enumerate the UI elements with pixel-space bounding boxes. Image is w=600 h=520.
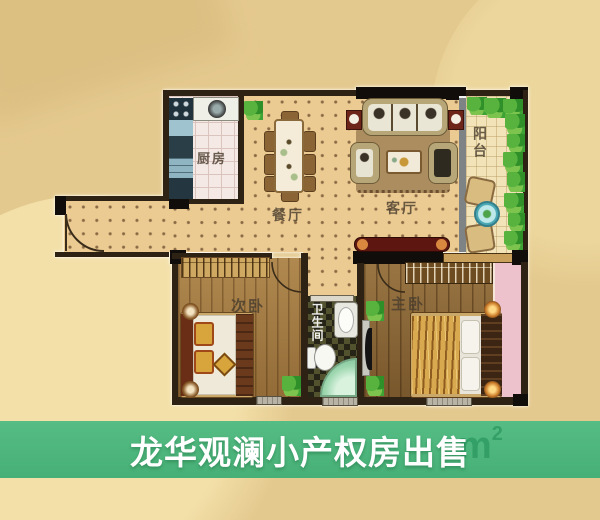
master-bedroom-door-arc: [378, 264, 405, 292]
second-bedroom-door-arc: [272, 262, 301, 292]
banner-title: 龙华观澜小产权房出售: [0, 426, 600, 474]
listing-image: 厨房 餐厅 客厅: [0, 0, 600, 520]
sale-banner: m2 龙华观澜小产权房出售: [0, 421, 600, 478]
entry-door-arc: [66, 214, 104, 251]
